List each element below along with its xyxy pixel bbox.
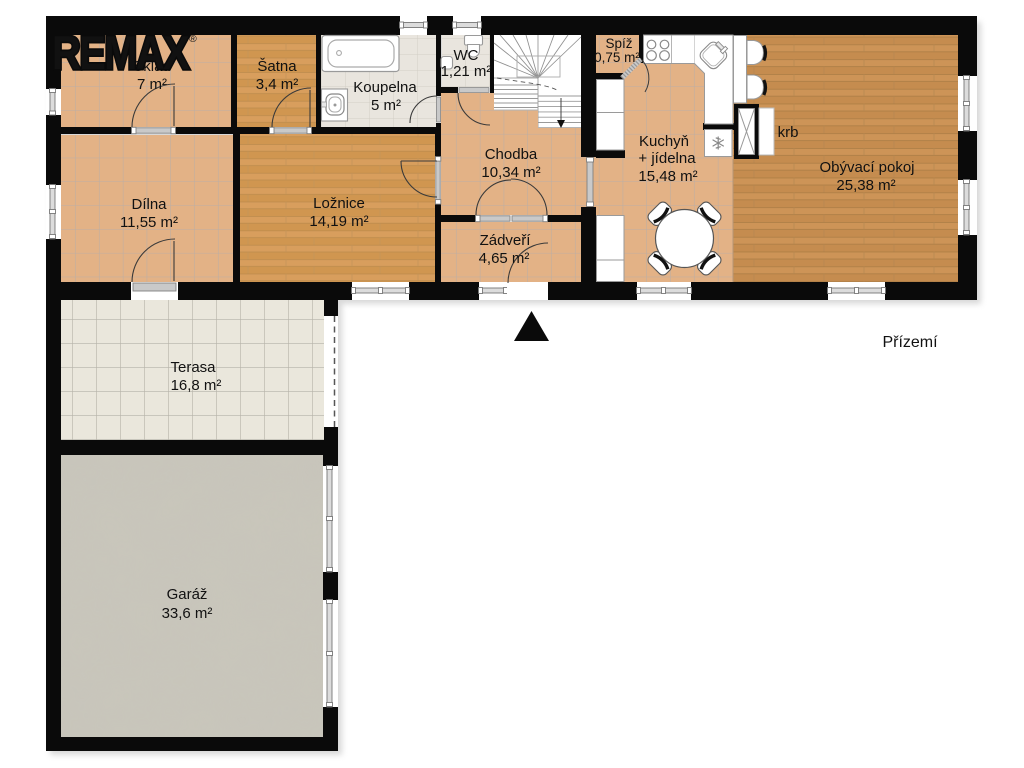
svg-text:WC: WC: [454, 47, 479, 64]
svg-text:3,4 m²: 3,4 m²: [256, 76, 299, 93]
svg-text:16,8 m²: 16,8 m²: [171, 377, 222, 394]
svg-text:Přízemí: Přízemí: [882, 334, 938, 351]
svg-text:Chodba: Chodba: [485, 146, 538, 163]
svg-text:10,34 m²: 10,34 m²: [481, 164, 540, 181]
svg-text:14,19 m²: 14,19 m²: [309, 213, 368, 230]
svg-text:Šatna: Šatna: [257, 58, 297, 75]
svg-text:Spíž: Spíž: [605, 36, 632, 51]
svg-text:REMAX: REMAX: [52, 26, 189, 79]
svg-text:®: ®: [189, 33, 197, 45]
svg-text:15,48 m²: 15,48 m²: [638, 168, 697, 185]
svg-text:Garáž: Garáž: [167, 586, 208, 603]
svg-text:krb: krb: [778, 124, 799, 141]
svg-text:25,38 m²: 25,38 m²: [836, 177, 895, 194]
svg-text:5 m²: 5 m²: [371, 97, 401, 114]
svg-text:Zádveří: Zádveří: [480, 232, 532, 249]
svg-text:Terasa: Terasa: [170, 359, 216, 376]
svg-text:Koupelna: Koupelna: [353, 79, 417, 96]
svg-text:4,65 m²: 4,65 m²: [479, 250, 530, 267]
svg-text:Dílna: Dílna: [131, 196, 167, 213]
svg-text:11,55 m²: 11,55 m²: [120, 214, 178, 231]
svg-text:Kuchyň: Kuchyň: [639, 133, 689, 150]
svg-text:1,21 m²: 1,21 m²: [441, 63, 492, 80]
svg-text:33,6 m²: 33,6 m²: [162, 605, 213, 622]
svg-text:+ jídelna: + jídelna: [638, 150, 696, 167]
svg-text:0,75 m²: 0,75 m²: [594, 50, 640, 65]
svg-text:Obývací pokoj: Obývací pokoj: [819, 159, 914, 176]
svg-text:Ložnice: Ložnice: [313, 195, 365, 212]
